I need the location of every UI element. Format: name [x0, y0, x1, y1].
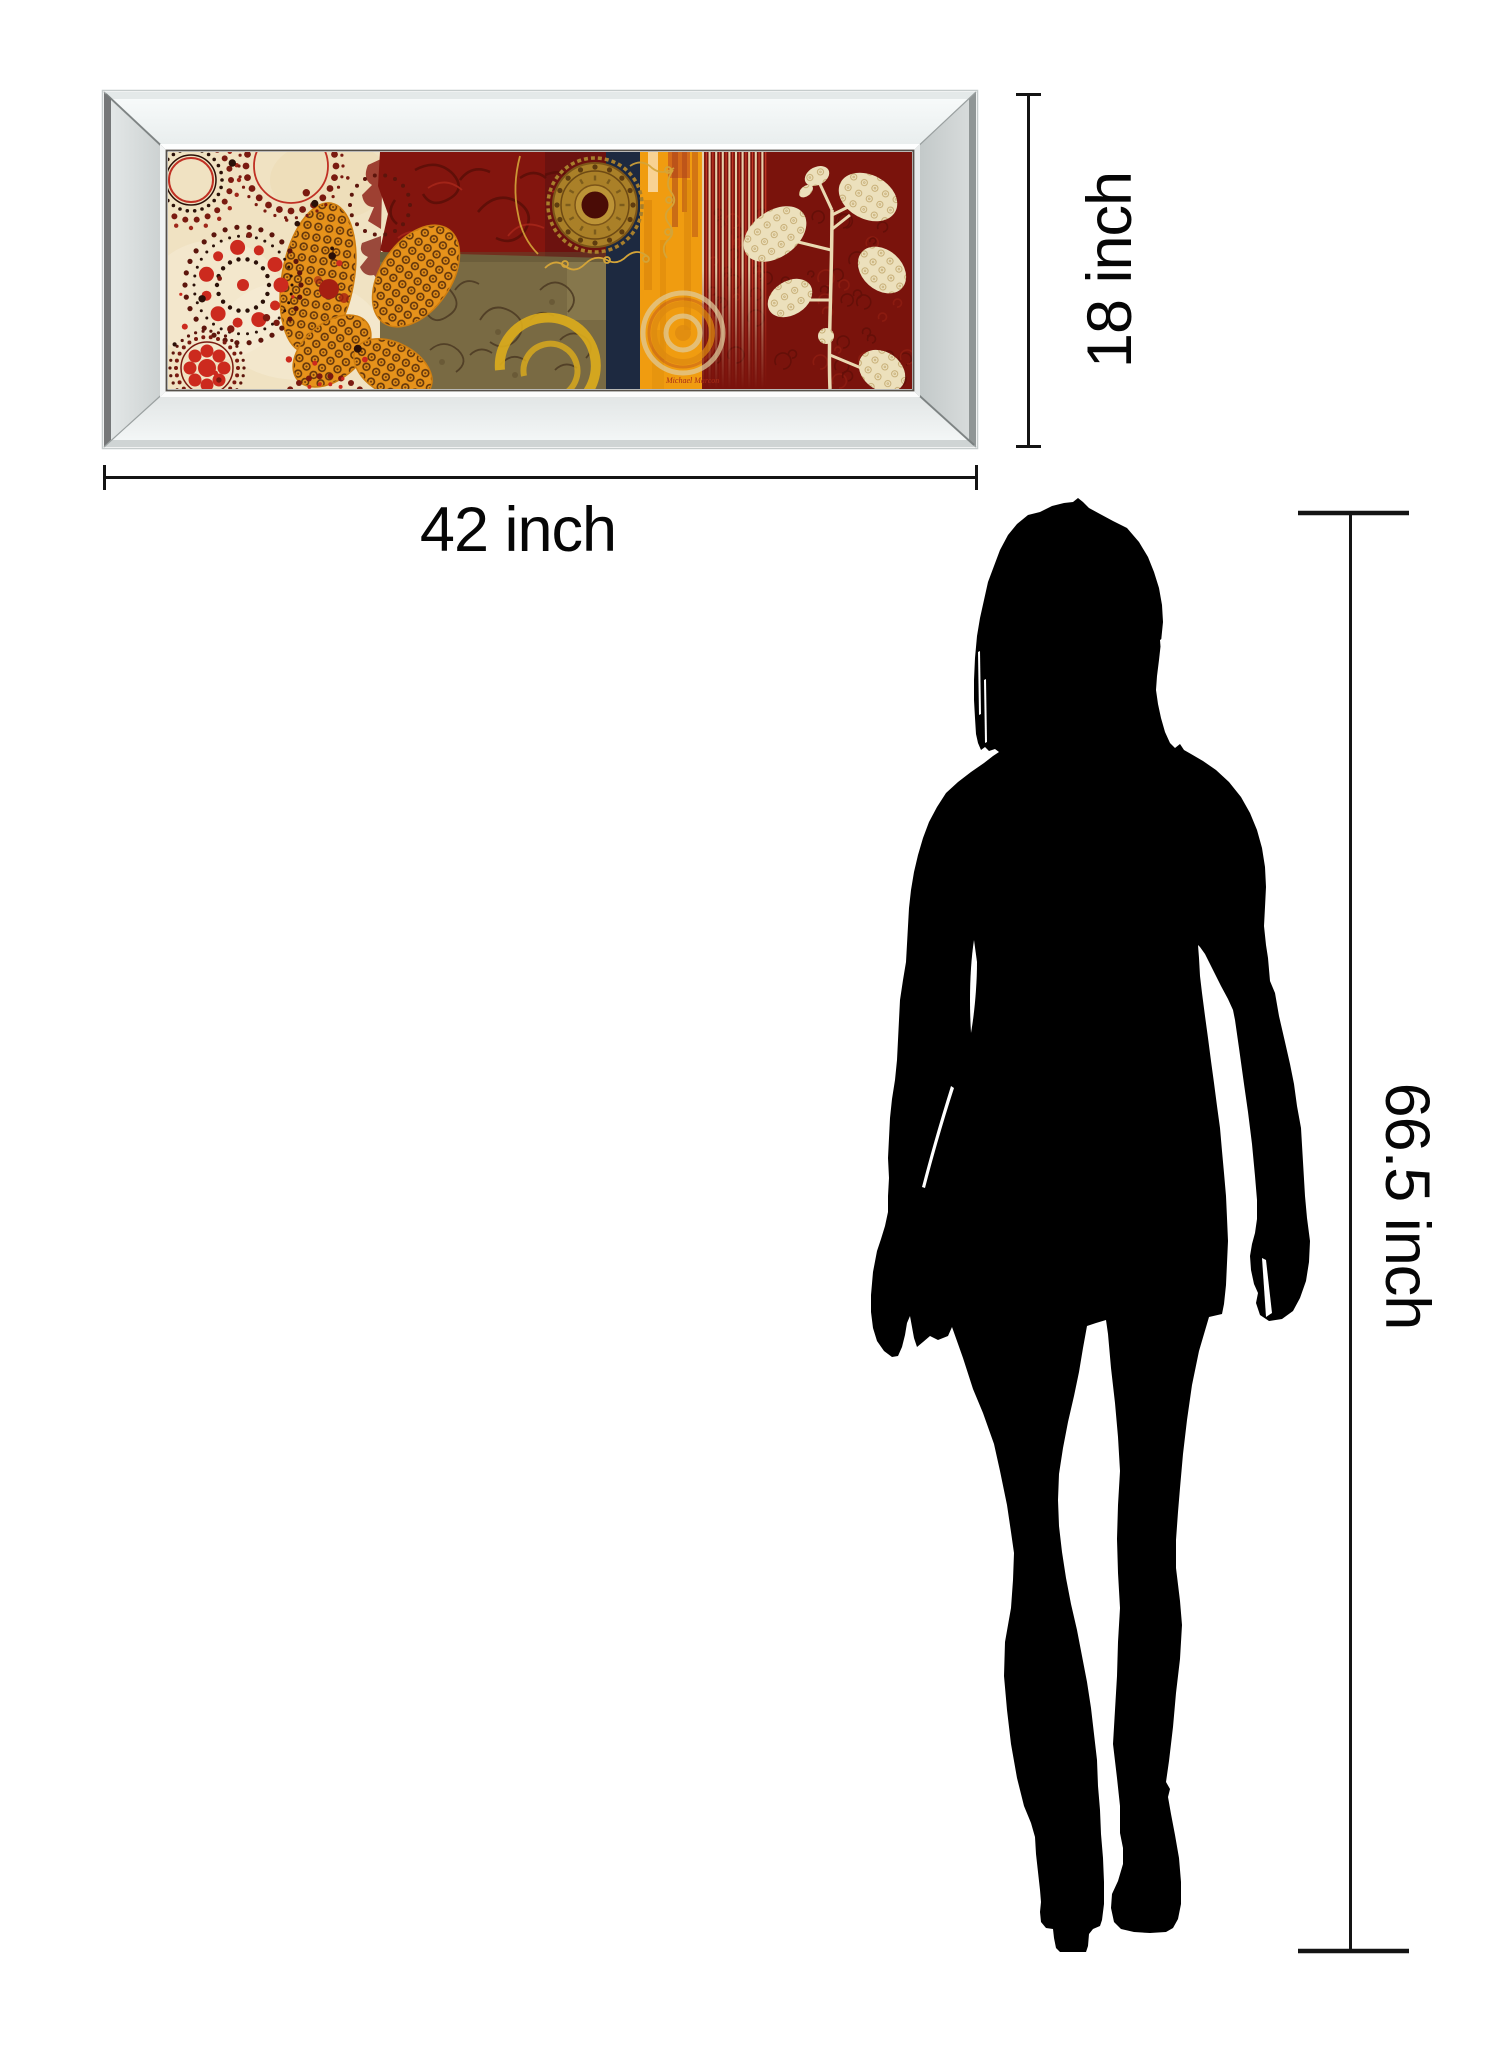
svg-text:Michael Marcon: Michael Marcon	[665, 376, 719, 385]
svg-text:42 inch: 42 inch	[420, 495, 616, 565]
svg-text:18 inch: 18 inch	[1075, 172, 1145, 368]
svg-text:66.5 inch: 66.5 inch	[1372, 1083, 1442, 1330]
